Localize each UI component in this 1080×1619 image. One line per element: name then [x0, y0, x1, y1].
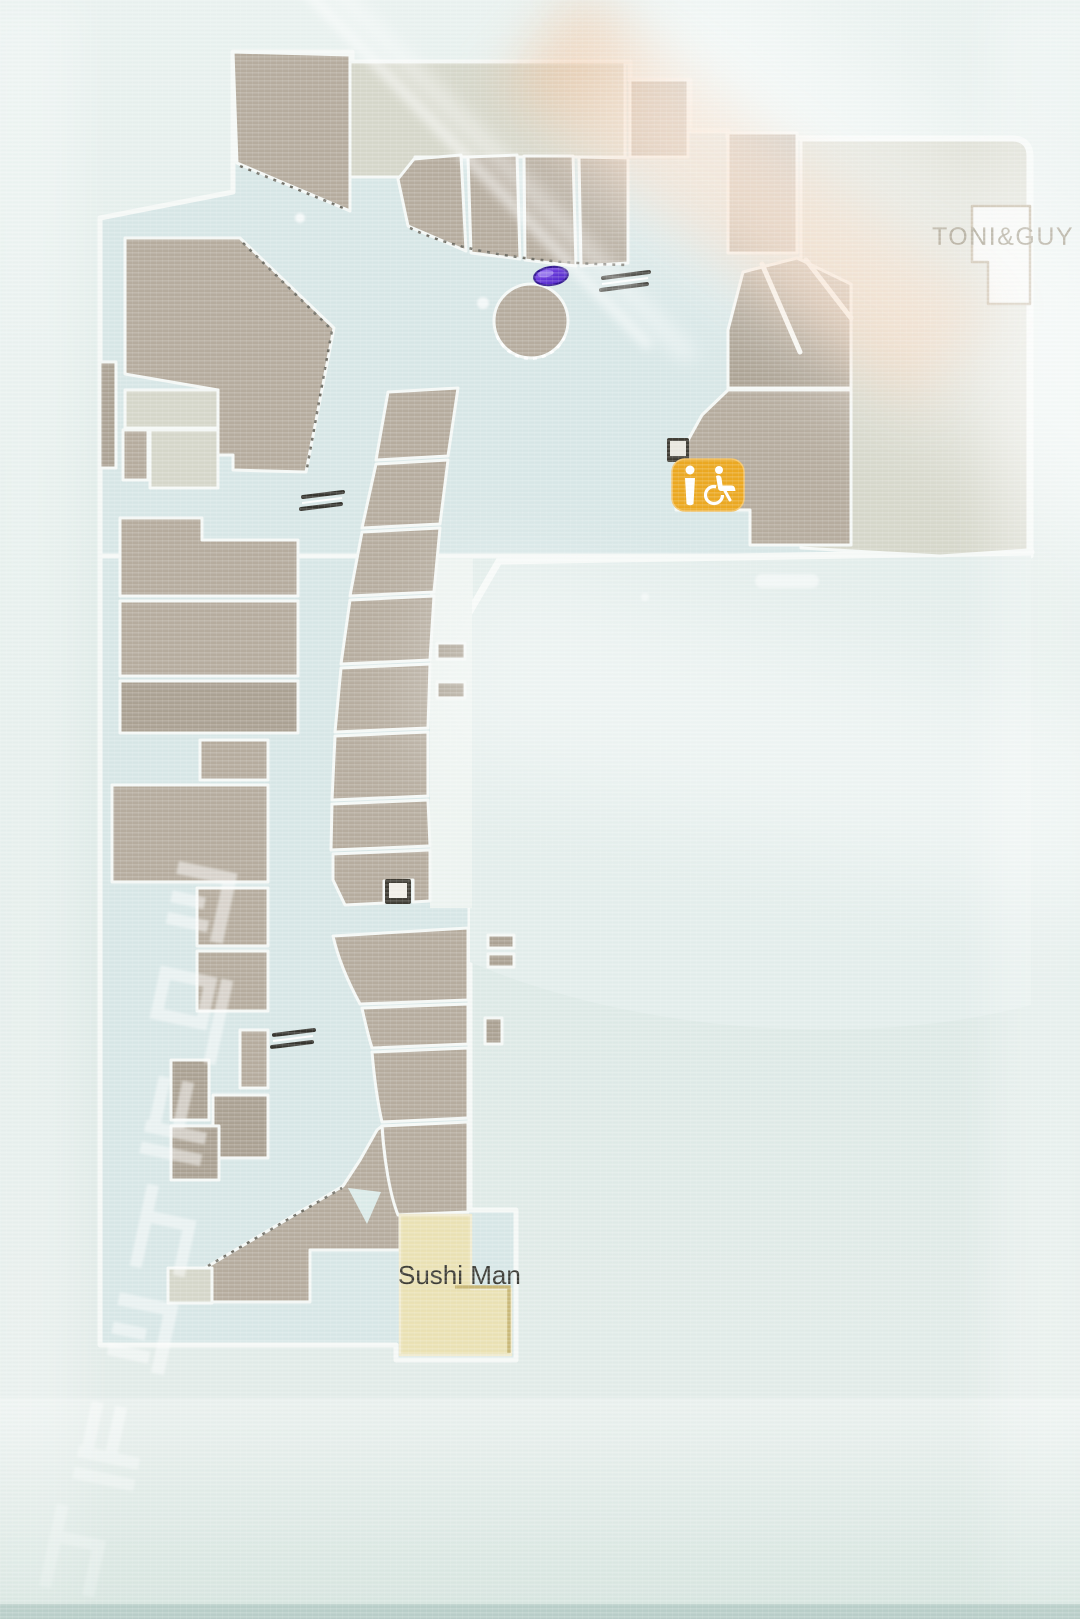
store-block [728, 133, 797, 253]
kiosk-screen: TONI&GUY [0, 0, 1080, 1619]
store-block [372, 1048, 468, 1122]
information-accessibility-badge[interactable] [672, 459, 744, 511]
store-block [524, 156, 576, 266]
open-hall-area [470, 551, 1031, 1030]
store-block [630, 80, 688, 157]
elevator-icon[interactable] [385, 879, 411, 904]
store-block [240, 1030, 268, 1088]
mall-floorplan: TONI&GUY [0, 0, 1080, 1619]
store-block [120, 681, 298, 733]
badge-background[interactable] [672, 459, 744, 511]
sushi-man-label: Sushi Man [398, 1260, 521, 1290]
store-block [579, 157, 628, 266]
store-block [331, 800, 430, 850]
store-block [123, 430, 148, 480]
store-block [350, 528, 440, 596]
store-block [120, 601, 298, 676]
store-block [485, 1018, 502, 1044]
store-block [332, 732, 428, 800]
information-attendant-icon [685, 466, 695, 506]
store-block [468, 155, 520, 259]
store-block [362, 460, 448, 528]
store-block [341, 596, 434, 664]
store-block [150, 430, 218, 488]
store-block [362, 1004, 468, 1048]
store-block [333, 928, 468, 1004]
store-block [437, 682, 465, 698]
store-block [437, 643, 465, 659]
store-block [213, 1095, 268, 1158]
toni-guy-label: TONI&GUY [932, 223, 1074, 251]
store-block [488, 954, 514, 967]
store-block [333, 850, 430, 905]
store-block [100, 362, 116, 468]
side-corridor [430, 558, 472, 908]
store-block [200, 740, 268, 780]
store-block [335, 664, 430, 732]
store-block [125, 390, 218, 428]
store-block [376, 388, 458, 460]
store-block [488, 935, 514, 948]
